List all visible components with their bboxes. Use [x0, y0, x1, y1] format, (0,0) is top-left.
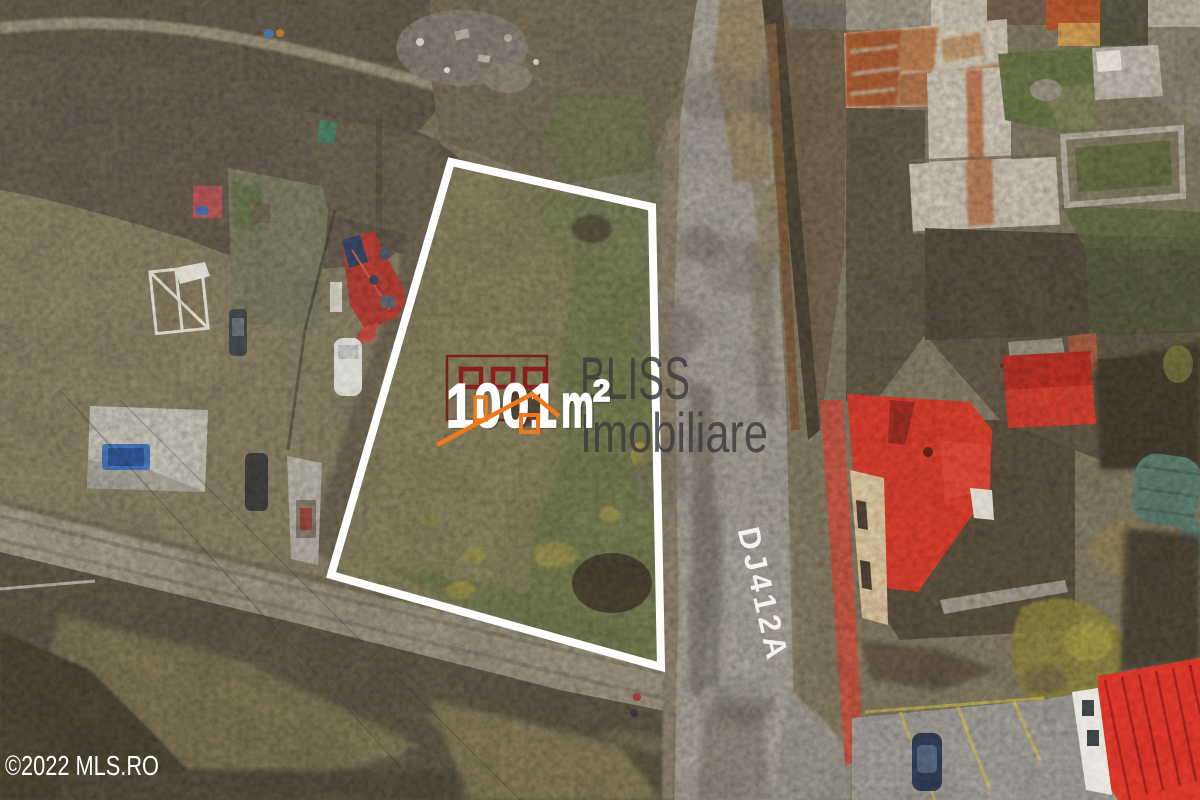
svg-text:2: 2: [593, 373, 610, 408]
svg-text:©2022 MLS.RO: ©2022 MLS.RO: [5, 750, 159, 781]
svg-text:m: m: [561, 372, 594, 441]
svg-text:Imobiliare: Imobiliare: [580, 401, 768, 464]
